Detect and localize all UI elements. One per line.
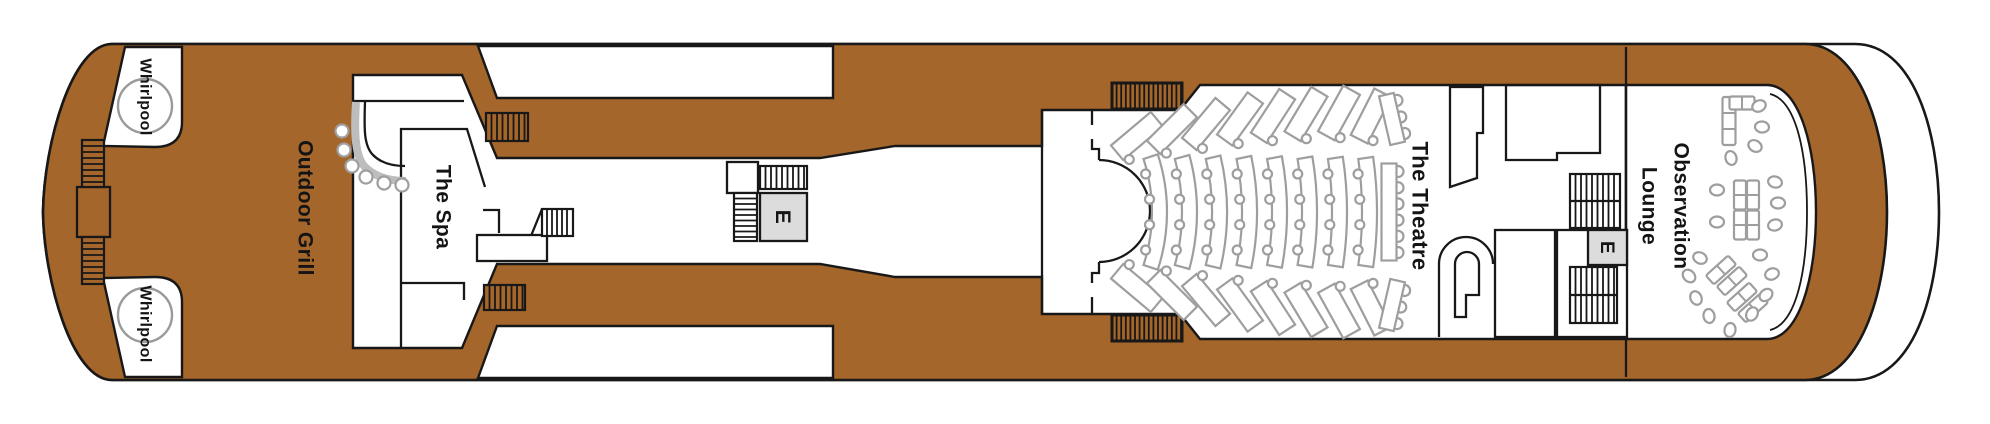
- bar-stool: [396, 179, 409, 192]
- elevator: E: [760, 193, 807, 241]
- row-end-table: [1263, 170, 1272, 179]
- row-end-table: [1323, 169, 1332, 178]
- label-the-spa: The Spa: [432, 165, 455, 249]
- row-end-table: [1325, 220, 1334, 229]
- row-end-table: [1141, 169, 1150, 178]
- lounge-chair: [1710, 185, 1724, 196]
- stairs: [760, 166, 807, 189]
- lounge-chair: [1753, 250, 1767, 261]
- label-observation: Observation: [1670, 143, 1693, 270]
- row-end-table: [1263, 245, 1272, 254]
- room-box: [727, 162, 758, 193]
- stairs-outline: [760, 166, 807, 189]
- stairs: [1112, 83, 1182, 109]
- row-end-table: [1175, 195, 1184, 204]
- elevator: E: [1588, 230, 1627, 265]
- stairs: [1570, 267, 1617, 323]
- bar-stool: [346, 160, 359, 173]
- row-end-table: [1141, 246, 1150, 255]
- row-end-table: [1202, 170, 1211, 179]
- label-the-theatre: The Theatre: [1407, 141, 1432, 270]
- lounge-sofa: [1734, 211, 1746, 240]
- row-end-table: [1205, 220, 1214, 229]
- row-end-table: [1233, 245, 1242, 254]
- room-box: [1495, 230, 1555, 337]
- stairs: [1112, 315, 1182, 341]
- bar-stool: [360, 171, 373, 184]
- row-end-table: [1235, 195, 1244, 204]
- row-end-table: [1265, 220, 1274, 229]
- row-end-table: [1265, 195, 1274, 204]
- row-end-table: [1354, 246, 1363, 255]
- stairs: [82, 140, 104, 187]
- stairs: [484, 285, 525, 310]
- deck-plan-page: EE Whirlpool Whirlpool Outdoor Grill The…: [0, 0, 1990, 424]
- row-end-table: [1202, 245, 1211, 254]
- stairs: [542, 209, 573, 236]
- bar-stool: [338, 144, 351, 157]
- lounge-sofa: [1734, 181, 1746, 210]
- row-end-table: [1175, 220, 1184, 229]
- side-deck-strip-bottom: [478, 326, 833, 378]
- label-whirlpool-top: Whirlpool: [136, 58, 153, 135]
- row-end-table: [1325, 195, 1334, 204]
- deck-plan-svg: EE Whirlpool Whirlpool Outdoor Grill The…: [0, 0, 1990, 424]
- stairs: [486, 113, 528, 141]
- stairs: [734, 193, 757, 241]
- elevator-label: E: [1596, 241, 1617, 254]
- row-end-table: [1355, 195, 1364, 204]
- row-end-table: [1205, 195, 1214, 204]
- row-end-table: [1295, 195, 1304, 204]
- elevator-label: E: [771, 210, 794, 224]
- row-end-table: [1235, 220, 1244, 229]
- stairs: [1570, 174, 1620, 228]
- label-whirlpool-bottom: Whirlpool: [136, 285, 153, 362]
- row-end-table: [1233, 170, 1242, 179]
- bench-outline: [1382, 164, 1397, 261]
- label-outdoor-grill: Outdoor Grill: [294, 140, 317, 276]
- row-end-table: [1145, 220, 1154, 229]
- stairs-outline: [734, 193, 757, 241]
- room-box: [77, 187, 110, 237]
- row-end-table: [1145, 195, 1154, 204]
- row-end-table: [1293, 169, 1302, 178]
- row-end-table: [1323, 246, 1332, 255]
- lounge-chair: [1755, 121, 1770, 133]
- label-lounge: Lounge: [1638, 167, 1661, 245]
- lounge-chair: [1710, 217, 1724, 228]
- row-end-table: [1355, 220, 1364, 229]
- row-end-table: [1295, 220, 1304, 229]
- side-deck-strip-top: [478, 46, 833, 98]
- room-box: [477, 235, 547, 261]
- lounge-sofa: [1747, 181, 1759, 210]
- bar-stool: [336, 125, 349, 138]
- row-end-table: [1172, 245, 1181, 254]
- bar-stool: [378, 177, 391, 190]
- lounge-sofa: [1747, 211, 1759, 240]
- lounge-chair: [1771, 198, 1785, 209]
- stairs: [82, 237, 104, 284]
- row-end-table: [1172, 170, 1181, 179]
- row-end-table: [1354, 169, 1363, 178]
- lounge-sofa: [1730, 97, 1755, 110]
- row-end-table: [1293, 246, 1302, 255]
